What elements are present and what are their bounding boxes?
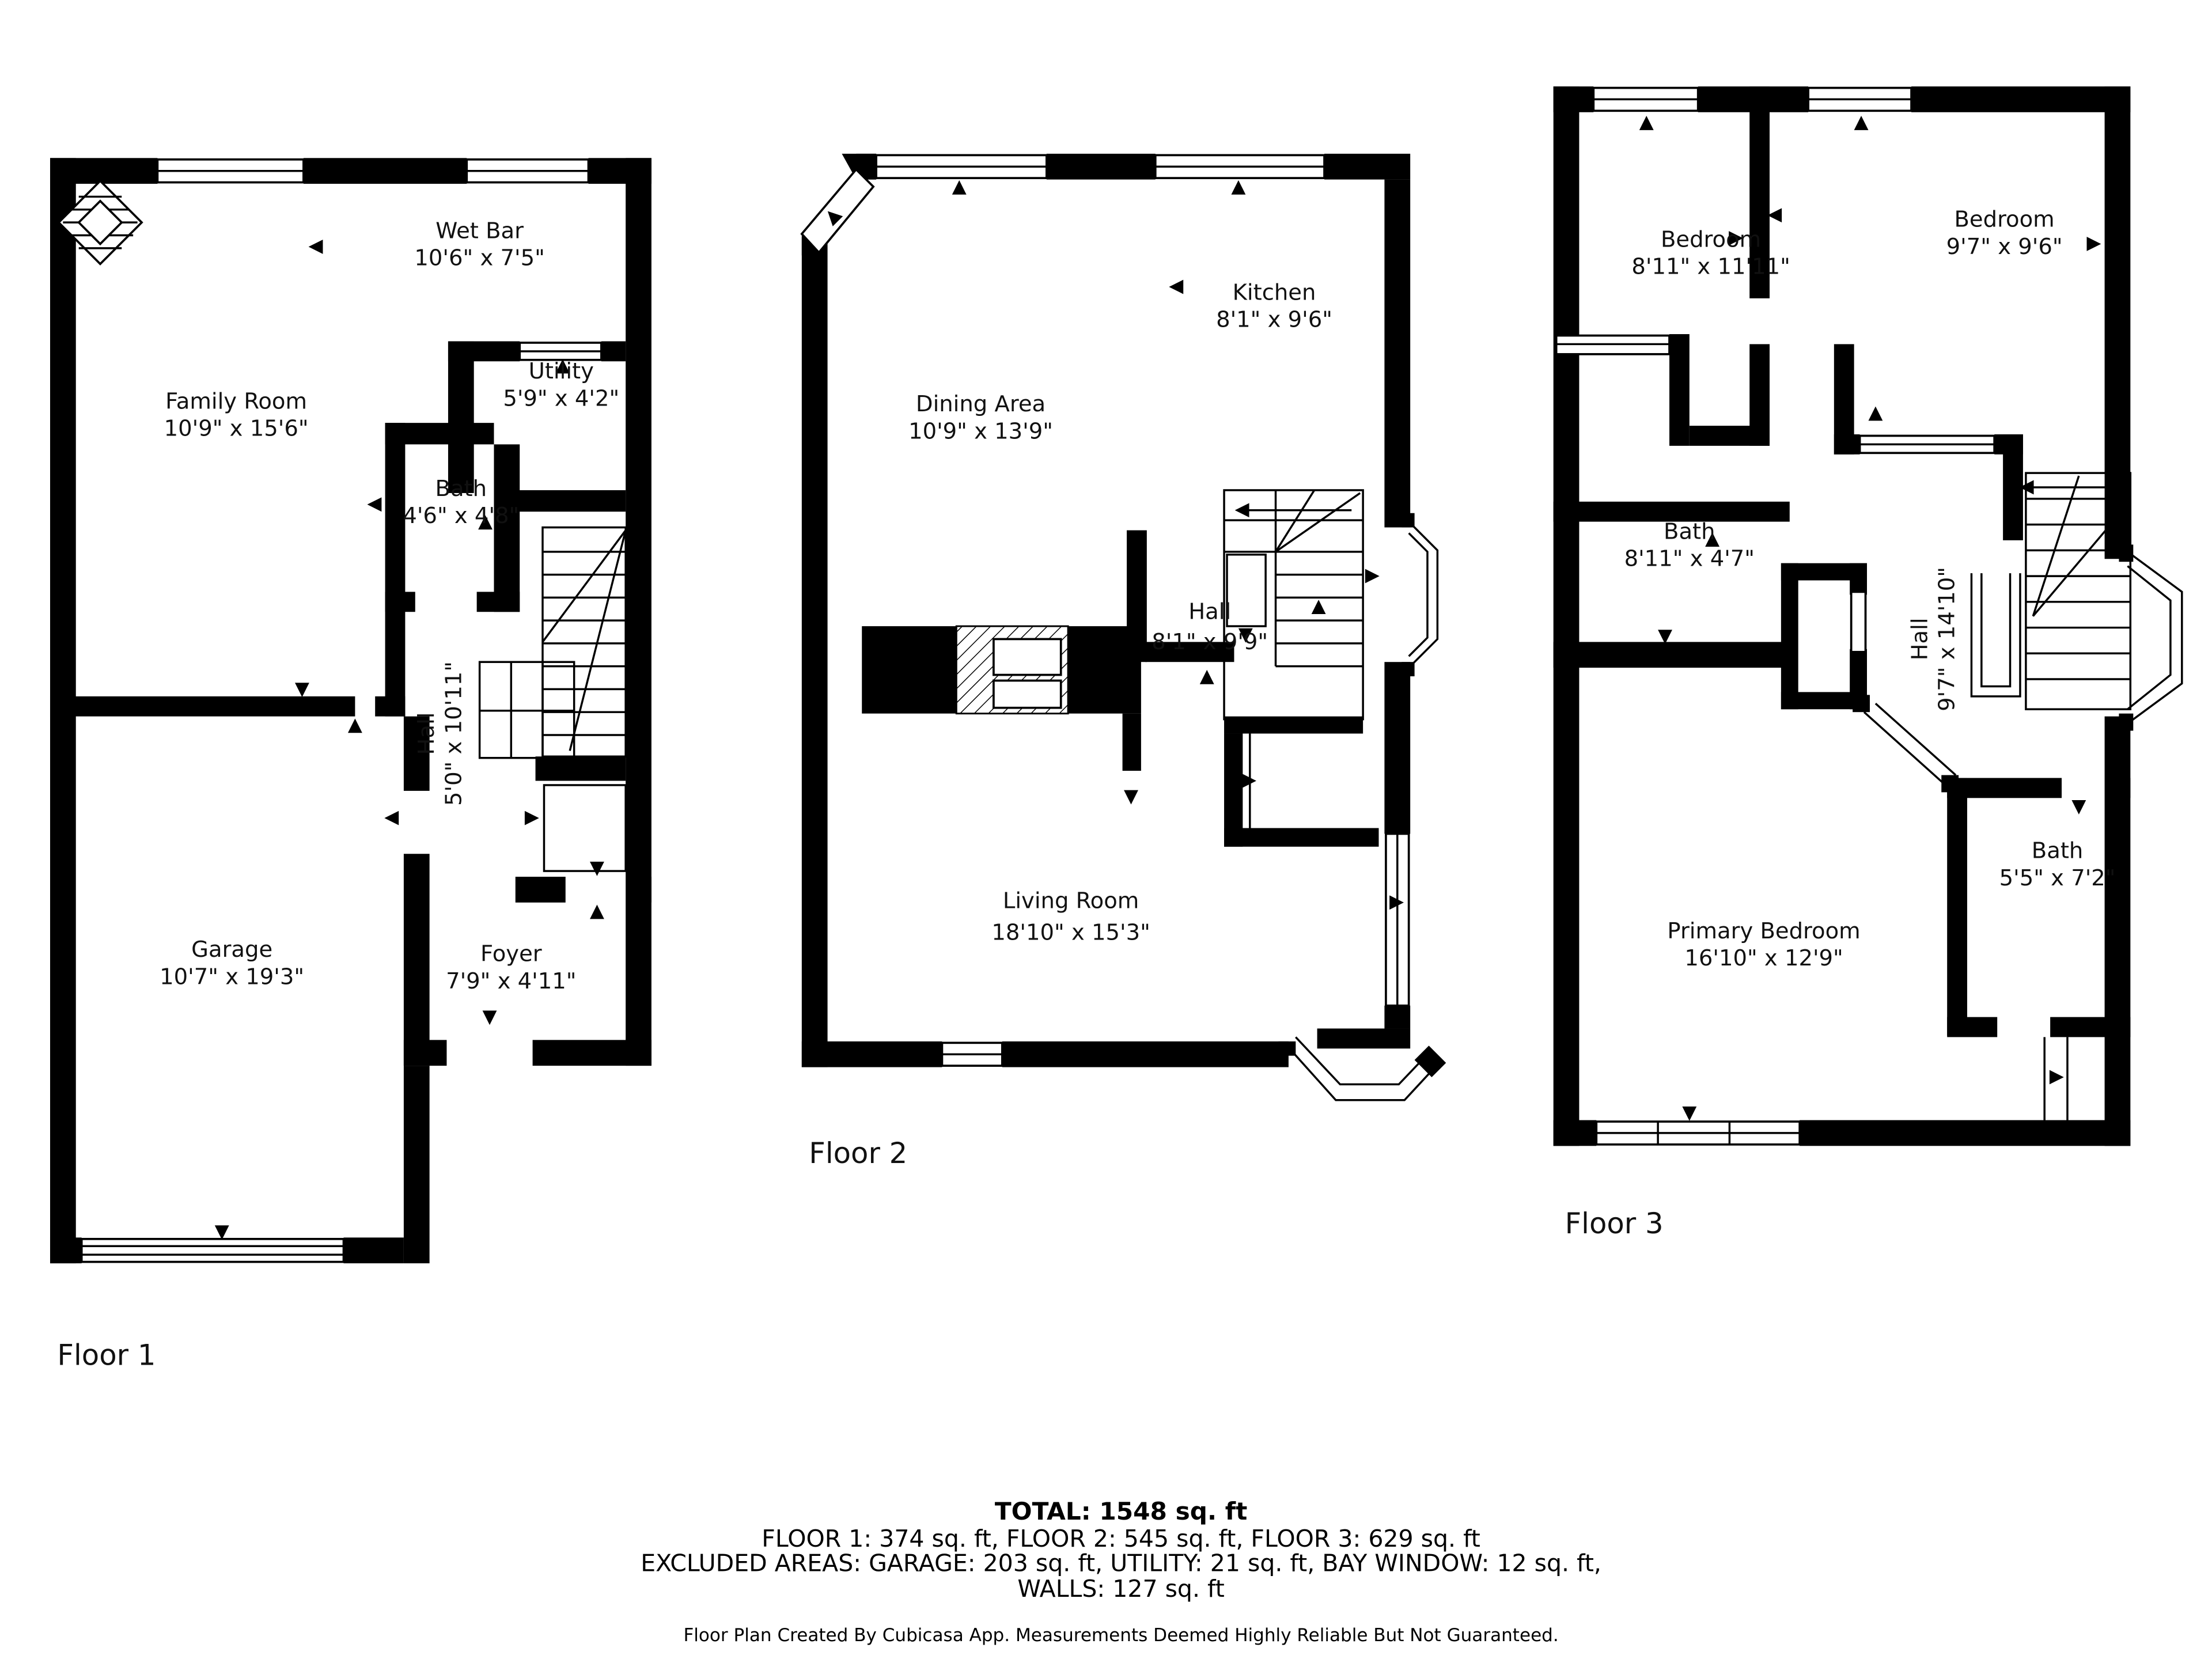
- room-label-living-room: Living Room: [1003, 888, 1139, 914]
- room-label-dining-area: Dining Area: [916, 391, 1046, 417]
- room-dims-primary-bedroom: 16'10" x 12'9": [1684, 945, 1843, 971]
- floor-2-plan: Kitchen 8'1" x 9'6" Dining Area 10'9" x …: [802, 154, 1446, 1170]
- room-dims-bath-f3a: 8'11" x 4'7": [1624, 546, 1755, 572]
- room-dims-dining-area: 10'9" x 13'9": [908, 418, 1053, 444]
- walls-area-text: WALLS: 127 sq. ft: [1017, 1575, 1224, 1603]
- bay-window-f3: [2119, 544, 2181, 730]
- floor-3-plan: Bedroom 8'11" x 11'11" Bedroom 9'7" x 9'…: [1554, 86, 2182, 1240]
- room-dims-foyer: 7'9" x 4'11": [446, 968, 576, 994]
- room-label-hall-f3: Hall: [1907, 618, 1933, 660]
- room-label-bedroom-2: Bedroom: [1955, 207, 2055, 233]
- room-dims-living-room: 18'10" x 15'3": [991, 919, 1150, 945]
- room-dims-utility: 5'9" x 4'2": [503, 385, 619, 411]
- total-area-text: TOTAL: 1548 sq. ft: [995, 1497, 1248, 1525]
- floor-1-plan: Wet Bar 10'6" x 7'5" Family Room 10'9" x…: [50, 158, 652, 1372]
- room-dims-kitchen: 8'1" x 9'6": [1216, 307, 1332, 333]
- floor-2-label: Floor 2: [809, 1137, 907, 1170]
- room-label-hall-f2: Hall: [1188, 599, 1231, 625]
- entry-door: [802, 169, 873, 252]
- floor-plan-page: Wet Bar 10'6" x 7'5" Family Room 10'9" x…: [0, 0, 2212, 1659]
- excluded-areas-text: EXCLUDED AREAS: GARAGE: 203 sq. ft, UTIL…: [641, 1549, 1601, 1577]
- room-label-family-room: Family Room: [165, 388, 307, 414]
- area-summary: TOTAL: 1548 sq. ft FLOOR 1: 374 sq. ft, …: [641, 1497, 1601, 1646]
- room-label-hall-f1: Hall: [414, 712, 440, 755]
- room-label-garage: Garage: [191, 937, 272, 963]
- floor-plan-canvas: Wet Bar 10'6" x 7'5" Family Room 10'9" x…: [0, 0, 2212, 1659]
- room-label-kitchen: Kitchen: [1233, 279, 1316, 305]
- room-dims-bedroom-1: 8'11" x 11'11": [1631, 254, 1790, 280]
- room-label-bath-f3a: Bath: [1664, 518, 1715, 544]
- room-label-foyer: Foyer: [480, 941, 542, 967]
- room-label-primary-bedroom: Primary Bedroom: [1667, 918, 1860, 944]
- room-label-utility: Utility: [529, 358, 594, 384]
- room-label-wet-bar: Wet Bar: [435, 218, 524, 244]
- room-label-bath-f1: Bath: [435, 476, 487, 502]
- room-dims-garage: 10'7" x 19'3": [160, 964, 304, 990]
- room-dims-bath-f3b: 5'5" x 7'2": [1999, 865, 2116, 891]
- room-dims-wet-bar: 10'6" x 7'5": [414, 245, 544, 271]
- room-label-bath-f3b: Bath: [2032, 838, 2084, 864]
- room-dims-hall-f1: 5'0" x 10'11": [441, 661, 467, 806]
- floor-areas-text: FLOOR 1: 374 sq. ft, FLOOR 2: 545 sq. ft…: [762, 1525, 1480, 1552]
- garage-door: [82, 1239, 344, 1262]
- bay-window-side: [1402, 513, 1437, 676]
- room-dims-family-room: 10'9" x 15'6": [164, 416, 309, 442]
- room-dims-hall-f2: 8'1" x 9'9": [1152, 629, 1268, 655]
- fireplace-hatched-icon: [956, 626, 1068, 714]
- floor-1-label: Floor 1: [57, 1339, 156, 1372]
- room-dims-hall-f3: 9'7" x 14'10": [1934, 567, 1960, 711]
- room-dims-bath-f1: 4'6" x 4'8": [403, 503, 519, 529]
- room-label-bedroom-1: Bedroom: [1661, 226, 1761, 252]
- floor-3-label: Floor 3: [1565, 1207, 1664, 1240]
- disclaimer-text: Floor Plan Created By Cubicasa App. Meas…: [683, 1625, 1558, 1646]
- room-dims-bedroom-2: 9'7" x 9'6": [1946, 234, 2063, 260]
